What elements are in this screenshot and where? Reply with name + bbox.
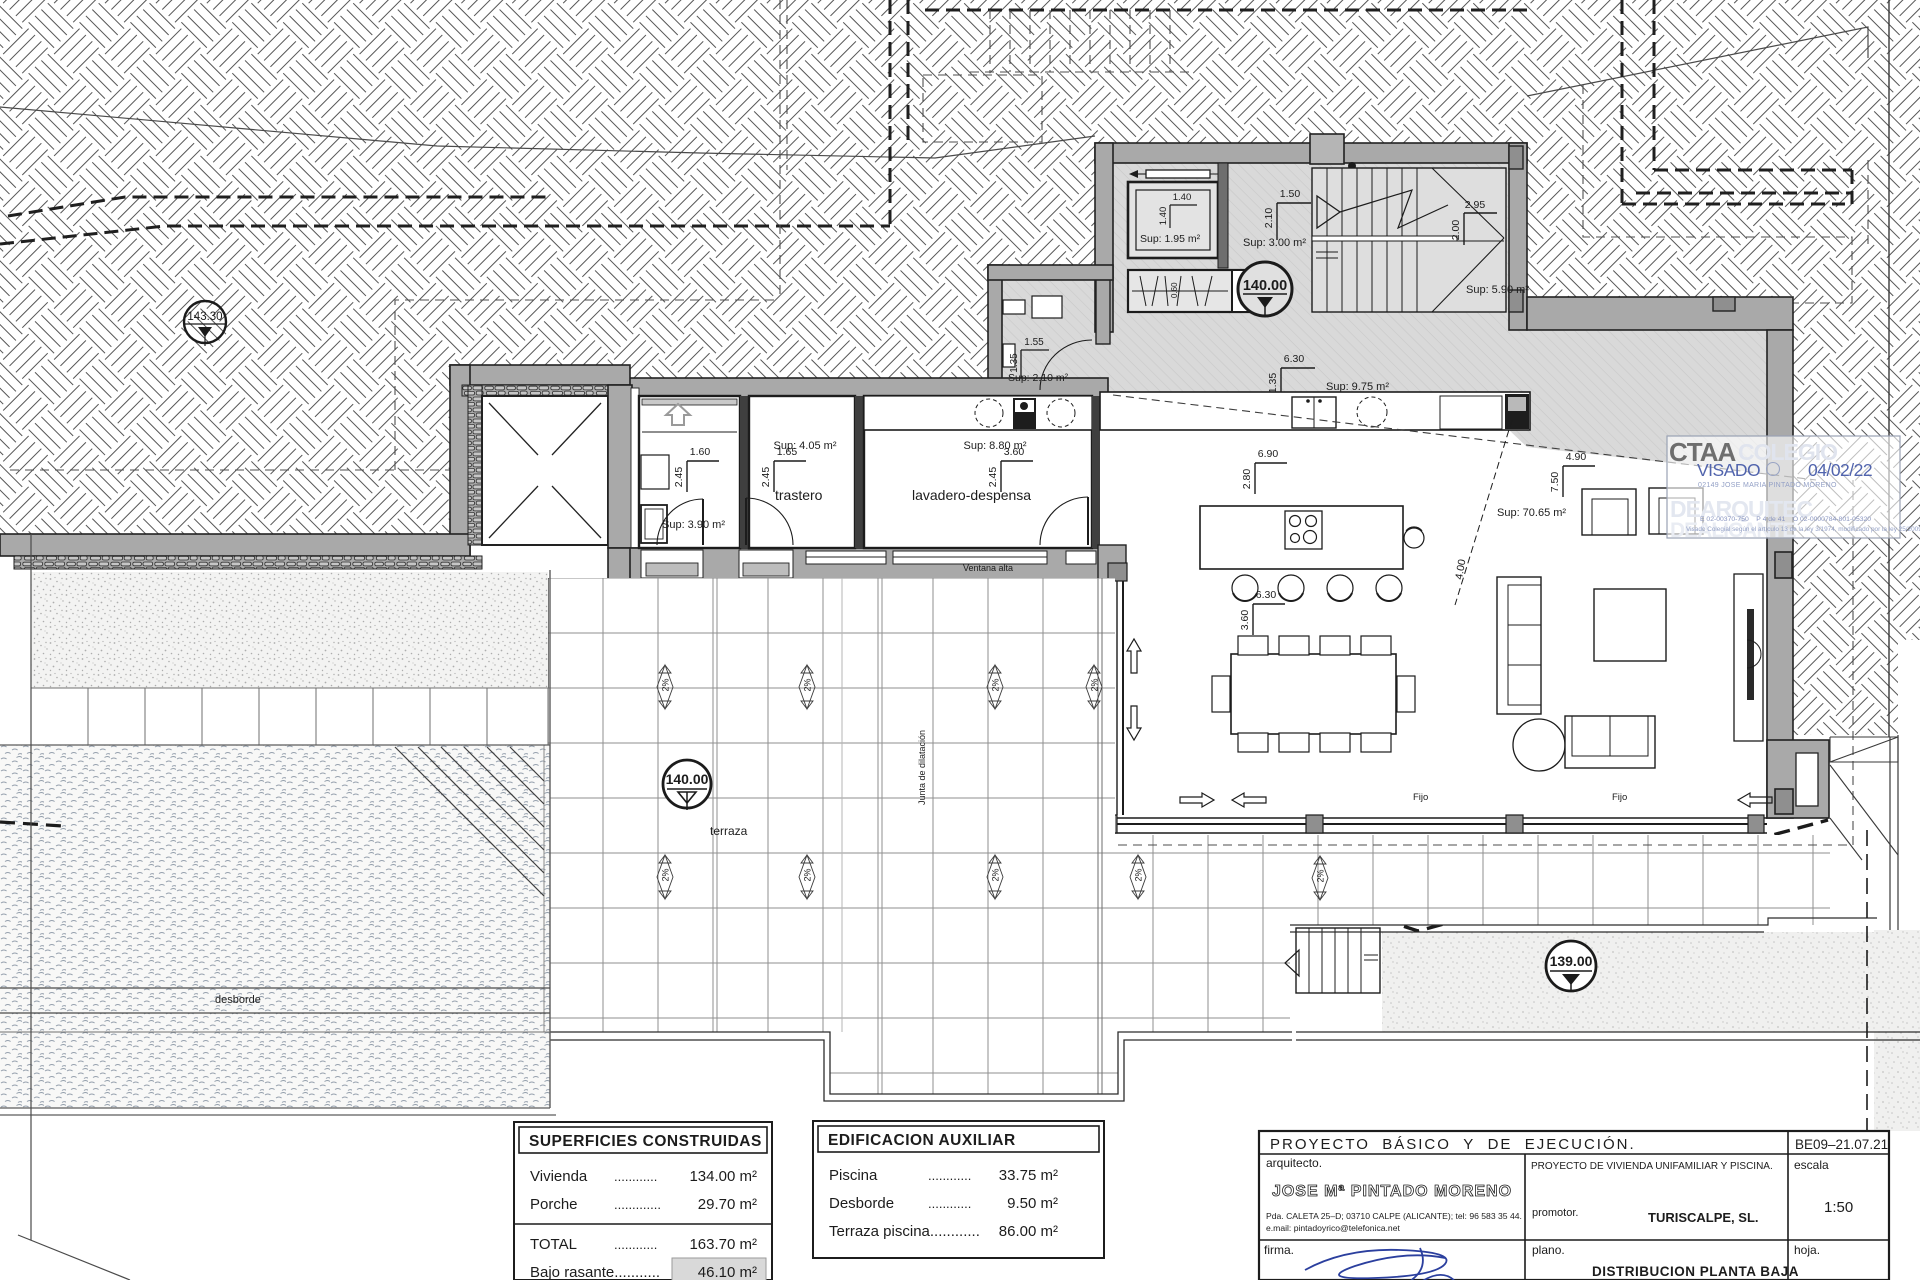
svg-text:TURISCALPE, SL.: TURISCALPE, SL. [1648,1210,1759,1225]
svg-text:Sup: 4.05 m²: Sup: 4.05 m² [774,440,837,452]
svg-text:1.60: 1.60 [690,446,711,458]
svg-text:29.70 m²: 29.70 m² [698,1196,757,1213]
svg-text:............: ............ [614,1169,657,1184]
svg-text:2%: 2% [803,678,813,691]
svg-text:2%: 2% [991,678,1001,691]
svg-text:BE09–21.07.21: BE09–21.07.21 [1795,1137,1888,1152]
svg-text:terraza: terraza [710,824,748,838]
svg-text:2%: 2% [803,868,813,881]
svg-text:1.35: 1.35 [1267,373,1279,394]
svg-text:Desborde: Desborde [829,1195,894,1212]
svg-text:e.mail: pintadoyrico@telefonic: e.mail: pintadoyrico@telefonica.net [1266,1223,1400,1233]
svg-text:163.70 m²: 163.70 m² [689,1236,757,1253]
svg-text:1.50: 1.50 [1280,188,1301,200]
svg-text:PROYECTO BÁSICO Y DE EJECU: PROYECTO BÁSICO Y DE EJECUCIÓN. [1270,1136,1636,1153]
svg-text:Sup: 3.90 m²: Sup: 3.90 m² [662,519,725,531]
svg-text:2.45: 2.45 [760,467,772,488]
svg-text:04/02/22: 04/02/22 [1808,460,1872,480]
svg-text:Sup: 2.10 m²: Sup: 2.10 m² [1008,372,1069,384]
svg-text:Piscina: Piscina [829,1167,878,1184]
svg-text:hoja.: hoja. [1794,1243,1820,1257]
svg-text:Junta de dilatación: Junta de dilatación [917,730,927,805]
svg-text:Fijo: Fijo [1413,792,1428,803]
svg-text:desborde: desborde [215,994,261,1006]
svg-text:7.50: 7.50 [1549,472,1561,493]
svg-text:Sup: 5.90 m²: Sup: 5.90 m² [1466,284,1529,296]
svg-text:E 02-00370-750 P 4 de 41: E 02-00370-750 P 4 de 41 O 02-0000784-80… [1700,516,1871,523]
svg-text:140.00: 140.00 [1243,278,1287,294]
svg-text:86.00 m²: 86.00 m² [999,1223,1058,1240]
svg-text:EDIFICACION AUXILIAR: EDIFICACION AUXILIAR [828,1132,1016,1149]
svg-text:.............: ............. [614,1197,661,1212]
svg-text:2%: 2% [1134,868,1144,881]
svg-text:............: ............ [928,1196,971,1211]
svg-text:............: ............ [928,1168,971,1183]
svg-text:6.90: 6.90 [1258,448,1279,460]
svg-text:Bajo rasante...........: Bajo rasante........... [530,1264,660,1280]
svg-text:Sup: 8.80 m²: Sup: 8.80 m² [964,440,1027,452]
svg-text:TOTAL: TOTAL [530,1236,577,1253]
svg-text:plano.: plano. [1532,1243,1565,1257]
svg-text:Terraza piscina............: Terraza piscina............ [829,1223,980,1240]
svg-text:2%: 2% [1316,869,1326,882]
svg-text:2.00: 2.00 [1450,220,1462,241]
svg-text:VISADO: VISADO [1697,460,1760,480]
svg-text:2%: 2% [1090,678,1100,691]
svg-text:Ventana alta: Ventana alta [963,563,1013,573]
svg-text:139.00: 139.00 [1550,953,1593,969]
svg-text:2.80: 2.80 [1241,469,1253,490]
svg-text:2.45: 2.45 [673,467,685,488]
svg-text:1.35: 1.35 [1009,353,1020,373]
svg-text:1:50: 1:50 [1824,1199,1853,1216]
svg-text:Sup: 3.00 m²: Sup: 3.00 m² [1243,237,1306,249]
svg-text:Sup: 1.95 m²: Sup: 1.95 m² [1140,233,1201,245]
svg-text:Pda. CALETA 25–D; 03710 CALPE: Pda. CALETA 25–D; 03710 CALPE (ALICANTE)… [1266,1211,1522,1221]
svg-text:promotor.: promotor. [1532,1207,1578,1219]
svg-text:134.00 m²: 134.00 m² [689,1168,757,1185]
svg-text:6.30: 6.30 [1256,589,1277,601]
svg-text:3.60: 3.60 [1239,610,1251,631]
svg-text:46.10 m²: 46.10 m² [698,1264,757,1280]
svg-text:1.55: 1.55 [1024,337,1044,348]
svg-text:9.50 m²: 9.50 m² [1007,1195,1058,1212]
svg-text:2.95: 2.95 [1465,199,1486,211]
svg-text:0.60: 0.60 [1170,282,1179,298]
svg-text:PROYECTO DE VIVIENDA UNIFAMILI: PROYECTO DE VIVIENDA UNIFAMILIAR Y PISCI… [1531,1161,1773,1172]
svg-text:escala: escala [1794,1158,1829,1172]
svg-text:140.00: 140.00 [666,771,709,787]
svg-text:2%: 2% [661,868,671,881]
svg-text:Fijo: Fijo [1612,792,1627,803]
svg-text:Visado Colegial según el artíc: Visado Colegial según el artículo 13 de … [1686,526,1920,533]
svg-text:arquitecto.: arquitecto. [1266,1156,1322,1170]
svg-text:1.40: 1.40 [1173,192,1192,203]
svg-text:33.75 m²: 33.75 m² [999,1167,1058,1184]
svg-text:1.40: 1.40 [1158,207,1169,226]
svg-text:2%: 2% [661,678,671,691]
svg-text:lavadero-despensa: lavadero-despensa [912,487,1031,503]
svg-text:DISTRIBUCION PLANTA BAJA: DISTRIBUCION PLANTA BAJA [1592,1264,1799,1279]
svg-text:JOSE Mª PINTADO MORENO: JOSE Mª PINTADO MORENO [1272,1183,1512,1200]
svg-text:trastero: trastero [775,487,823,503]
svg-text:Vivienda: Vivienda [530,1168,588,1185]
svg-text:2.45: 2.45 [987,467,999,488]
svg-text:firma.: firma. [1264,1243,1294,1257]
svg-text:Porche: Porche [530,1196,578,1213]
svg-text:SUPERFICIES CONSTRUIDAS: SUPERFICIES CONSTRUIDAS [529,1133,762,1150]
svg-text:6.30: 6.30 [1284,353,1305,365]
svg-text:4.90: 4.90 [1566,451,1587,463]
svg-text:............: ............ [614,1237,657,1252]
svg-text:143.30: 143.30 [187,311,222,323]
svg-text:02149 JOSE MARIA PINTADO MOREN: 02149 JOSE MARIA PINTADO MORENO [1698,482,1837,489]
svg-text:2.10: 2.10 [1263,208,1275,229]
svg-text:Sup: 70.65 m²: Sup: 70.65 m² [1497,507,1566,519]
svg-text:2%: 2% [991,868,1001,881]
